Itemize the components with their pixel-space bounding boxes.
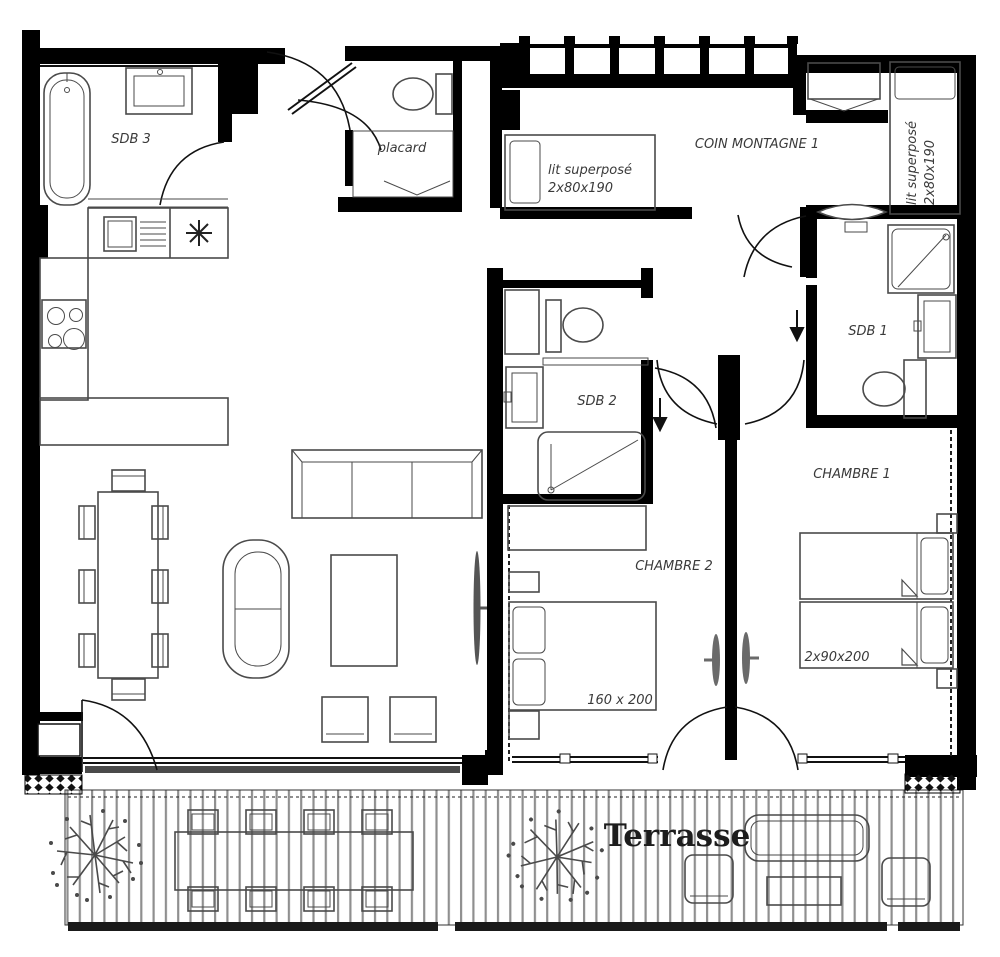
wall-sdb1-bottom — [806, 415, 957, 428]
room-label-chambre1: CHAMBRE 1 — [813, 467, 891, 482]
glazing-mullion — [798, 754, 807, 763]
bunk-left-label-2: 2x80x190 — [548, 181, 613, 196]
insulation-hatch-left — [25, 775, 82, 794]
glazing-mullion — [888, 754, 898, 763]
floor-plan-page: Terrasse — [0, 0, 1000, 957]
bed-size-chambre2: 160 x 200 — [587, 693, 653, 708]
glazing-mullion — [560, 754, 570, 763]
room-label-sdb1: SDB 1 — [848, 324, 888, 339]
terrace-area: Terrasse — [49, 790, 963, 931]
wall-placard-bottom — [338, 197, 460, 212]
wall-wc-right — [453, 58, 462, 212]
room-label-sdb2: SDB 2 — [577, 394, 617, 409]
bunk-right-label-2: 2x80x190 — [923, 140, 938, 205]
wall-central — [487, 268, 503, 758]
insulation-hatch-right — [905, 774, 960, 793]
window-bottom-left — [38, 724, 80, 756]
wall-sdb2-top — [502, 280, 653, 288]
room-label-sdb3: SDB 3 — [111, 132, 151, 147]
terrace-base-left — [68, 922, 438, 931]
wall-hall-top — [500, 207, 692, 219]
room-label-coin-montagne: COIN MONTAGNE 1 — [695, 137, 819, 152]
floor-plan-drawing: Terrasse — [0, 0, 1000, 957]
sliding-door-track — [85, 766, 460, 773]
beds-size-chambre1: 2x90x200 — [804, 650, 869, 665]
wall-hall-stub — [718, 355, 740, 440]
room-label-placard: placard — [377, 141, 427, 156]
wall-sdb2-bottom — [502, 494, 653, 504]
terrace-base-mid — [455, 922, 887, 931]
bunk-right-label-1: lit superposé — [905, 121, 920, 205]
glazing-mullion — [648, 754, 657, 763]
room-label-chambre2: CHAMBRE 2 — [635, 559, 713, 574]
wall-sdb3-right — [218, 64, 232, 142]
wall-top-a — [40, 48, 285, 64]
window-band-sill — [520, 74, 797, 88]
wall-left — [22, 30, 40, 775]
terrace-label: Terrasse — [604, 818, 751, 854]
wall-top-c — [795, 55, 957, 73]
terrace-base-right — [898, 922, 960, 931]
bunk-left-label-1: lit superposé — [548, 163, 632, 178]
wall-chambre-divider — [725, 430, 737, 760]
